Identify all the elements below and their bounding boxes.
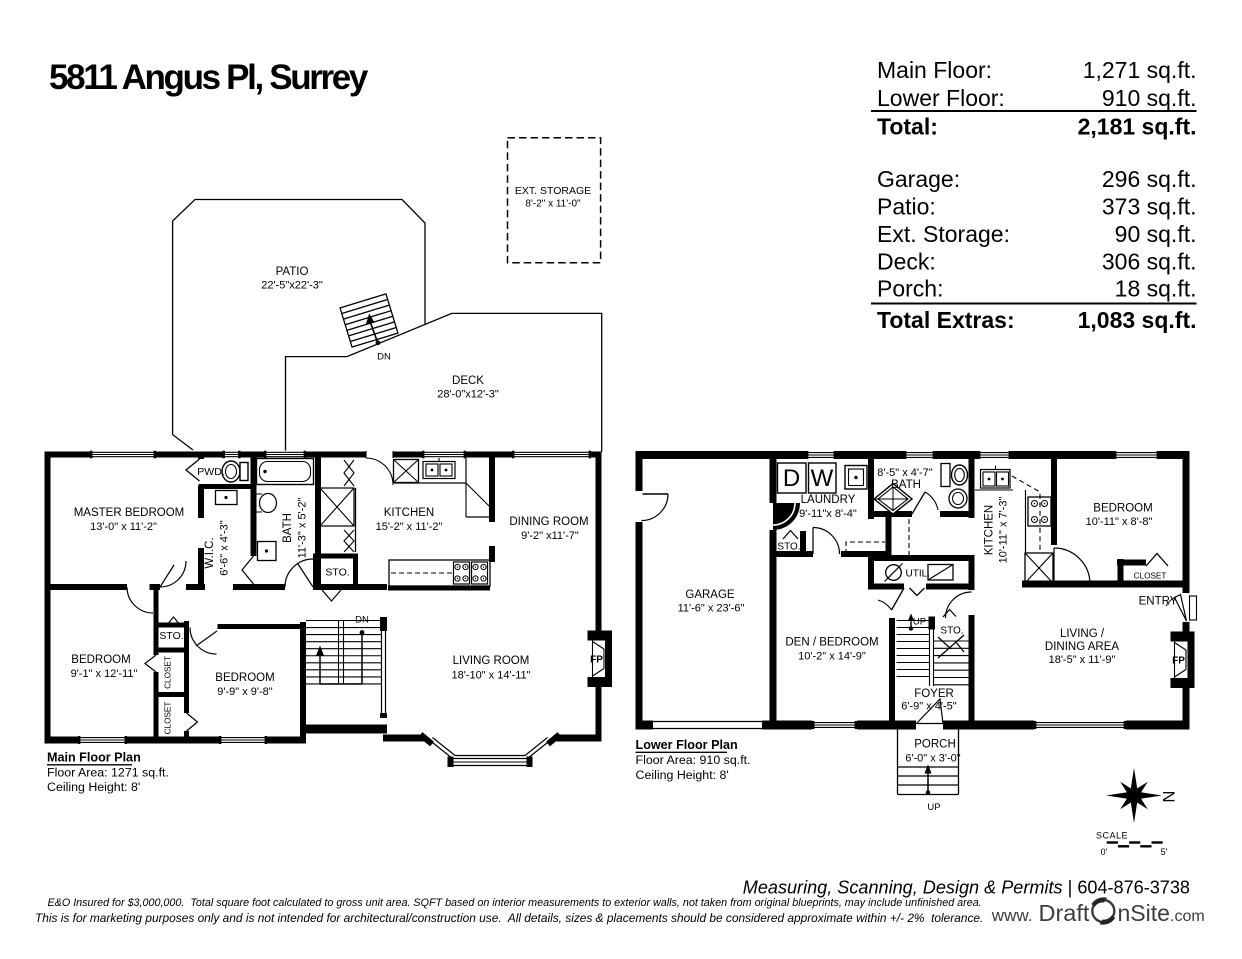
svg-text:N: N: [1159, 791, 1177, 803]
svg-text:6'-6" x 4'-3": 6'-6" x 4'-3": [219, 520, 231, 576]
svg-text:UTIL.: UTIL.: [906, 569, 930, 580]
svg-text:8'-5" x 4'-7": 8'-5" x 4'-7": [877, 467, 933, 479]
svg-text:www.: www.: [991, 906, 1033, 925]
svg-text:DN: DN: [355, 615, 369, 626]
svg-text:STO.: STO.: [325, 567, 349, 579]
svg-text:FOYER: FOYER: [914, 688, 954, 700]
svg-text:Total Extras:: Total Extras:: [877, 307, 1015, 333]
svg-text:KITCHEN: KITCHEN: [984, 505, 996, 555]
svg-text:Floor Area: 910 sq.ft.: Floor Area: 910 sq.ft.: [636, 753, 751, 767]
svg-text:28'-0"x12'-3": 28'-0"x12'-3": [437, 389, 499, 401]
svg-text:373 sq.ft.: 373 sq.ft.: [1102, 194, 1197, 220]
svg-text:Total:: Total:: [877, 114, 938, 140]
svg-text:BEDROOM: BEDROOM: [215, 672, 274, 684]
svg-text:KITCHEN: KITCHEN: [384, 507, 434, 519]
svg-text:LIVING ROOM: LIVING ROOM: [453, 655, 530, 667]
svg-text:BATH: BATH: [891, 479, 921, 491]
svg-text:11'-6" x 23'-6": 11'-6" x 23'-6": [678, 603, 745, 615]
svg-text:CLOSET: CLOSET: [1134, 572, 1167, 581]
svg-text:D: D: [783, 465, 800, 492]
svg-text:1,271 sq.ft.: 1,271 sq.ft.: [1083, 57, 1197, 83]
svg-text:910 sq.ft.: 910 sq.ft.: [1102, 85, 1197, 111]
svg-text:EXT. STORAGE: EXT. STORAGE: [515, 185, 591, 197]
svg-text:UP: UP: [913, 617, 926, 628]
svg-text:Lower Floor:: Lower Floor:: [877, 85, 1005, 111]
svg-text:PORCH: PORCH: [914, 739, 956, 751]
svg-text:6'-0" x 3'-0": 6'-0" x 3'-0": [905, 753, 961, 765]
svg-text:Ceiling Height: 8': Ceiling Height: 8': [636, 768, 729, 782]
svg-text:Main Floor Plan: Main Floor Plan: [47, 751, 141, 765]
svg-text:BEDROOM: BEDROOM: [1093, 503, 1152, 515]
svg-text:10'-11" x 8'-8": 10'-11" x 8'-8": [1086, 516, 1153, 528]
svg-text:18'-10" x 14'-11": 18'-10" x 14'-11": [451, 670, 530, 682]
svg-text:BATH: BATH: [282, 513, 294, 543]
svg-text:STO.: STO.: [777, 542, 800, 553]
svg-text:Floor Area: 1271 sq.ft.: Floor Area: 1271 sq.ft.: [47, 766, 169, 780]
svg-text:DN: DN: [377, 352, 391, 363]
svg-text:FP: FP: [590, 655, 603, 666]
svg-text:Draft: Draft: [1039, 900, 1090, 926]
svg-text:6'-9" x 4'-5": 6'-9" x 4'-5": [901, 701, 957, 713]
svg-text:LIVING /: LIVING /: [1060, 628, 1105, 640]
svg-text:.com: .com: [1170, 908, 1205, 925]
svg-text:10'-2" x 14'-9": 10'-2" x 14'-9": [798, 651, 866, 663]
svg-text:Patio:: Patio:: [877, 194, 936, 220]
svg-text:Ext. Storage:: Ext. Storage:: [877, 221, 1010, 247]
svg-text:0': 0': [1101, 847, 1108, 857]
svg-text:PWD.: PWD.: [197, 466, 224, 478]
svg-text:Main Floor:: Main Floor:: [877, 57, 992, 83]
svg-text:DECK: DECK: [452, 375, 484, 387]
svg-text:Measuring, Scanning, Design &: Measuring, Scanning, Design & Permits | …: [743, 878, 1190, 898]
svg-text:DINING ROOM: DINING ROOM: [509, 516, 588, 528]
svg-text:UP: UP: [927, 802, 940, 813]
svg-text:9'-1" x 12'-11": 9'-1" x 12'-11": [71, 668, 138, 680]
svg-text:Garage:: Garage:: [877, 166, 960, 192]
svg-text:E&O Insured for $3,000,000. T: E&O Insured for $3,000,000. Total square…: [48, 897, 982, 909]
svg-text:9'-2" x11'-7": 9'-2" x11'-7": [521, 530, 579, 542]
svg-text:15'-2" x 11'-2": 15'-2" x 11'-2": [376, 521, 443, 533]
svg-text:2,181 sq.ft.: 2,181 sq.ft.: [1078, 114, 1197, 140]
svg-text:DEN / BEDROOM: DEN / BEDROOM: [785, 637, 878, 649]
svg-text:This is for marketing purposes: This is for marketing purposes only and …: [35, 911, 983, 925]
svg-text:CLOSET: CLOSET: [164, 702, 173, 735]
svg-text:11'-3" x 5'-2": 11'-3" x 5'-2": [297, 498, 309, 559]
svg-text:GARAGE: GARAGE: [685, 589, 735, 601]
svg-text:nSite: nSite: [1118, 900, 1170, 926]
svg-text:MASTER BEDROOM: MASTER BEDROOM: [74, 507, 185, 519]
svg-text:STO.: STO.: [159, 630, 183, 642]
svg-text:18 sq.ft.: 18 sq.ft.: [1115, 276, 1197, 302]
svg-text:10'-11" x 7'-3": 10'-11" x 7'-3": [998, 496, 1010, 563]
svg-text:9'-11"x 8'-4": 9'-11"x 8'-4": [799, 508, 857, 520]
svg-text:18'-5" x 11'-9": 18'-5" x 11'-9": [1049, 654, 1116, 666]
svg-text:ENTRY: ENTRY: [1139, 596, 1178, 608]
svg-text:5811 Angus Pl, Surrey: 5811 Angus Pl, Surrey: [49, 58, 369, 97]
svg-text:Lower Floor Plan: Lower Floor Plan: [636, 738, 738, 752]
svg-text:W: W: [811, 465, 834, 492]
svg-text:9'-9" x 9'-8": 9'-9" x 9'-8": [217, 686, 273, 698]
svg-text:BEDROOM: BEDROOM: [71, 654, 130, 666]
svg-text:Ceiling Height: 8': Ceiling Height: 8': [47, 780, 140, 794]
svg-text:5': 5': [1161, 847, 1168, 857]
svg-text:Porch:: Porch:: [877, 276, 943, 302]
svg-text:306 sq.ft.: 306 sq.ft.: [1102, 249, 1197, 275]
svg-text:1,083 sq.ft.: 1,083 sq.ft.: [1078, 307, 1197, 333]
svg-text:296 sq.ft.: 296 sq.ft.: [1102, 166, 1197, 192]
svg-text:13'-0" x 11'-2": 13'-0" x 11'-2": [90, 521, 157, 533]
svg-text:90 sq.ft.: 90 sq.ft.: [1115, 221, 1197, 247]
svg-text:W.I.C.: W.I.C.: [204, 537, 216, 568]
svg-text:LAUNDRY: LAUNDRY: [801, 494, 856, 506]
svg-text:SCALE: SCALE: [1096, 831, 1128, 841]
svg-text:22'-5"x22'-3": 22'-5"x22'-3": [261, 280, 323, 292]
svg-text:DINING AREA: DINING AREA: [1045, 641, 1119, 653]
svg-text:CLOSET: CLOSET: [164, 656, 173, 689]
svg-text:Deck:: Deck:: [877, 249, 936, 275]
svg-text:FP: FP: [1172, 656, 1185, 667]
svg-text:PATIO: PATIO: [276, 266, 309, 278]
svg-text:8'-2" x 11'-0": 8'-2" x 11'-0": [525, 199, 581, 210]
svg-text:STO.: STO.: [940, 626, 963, 637]
